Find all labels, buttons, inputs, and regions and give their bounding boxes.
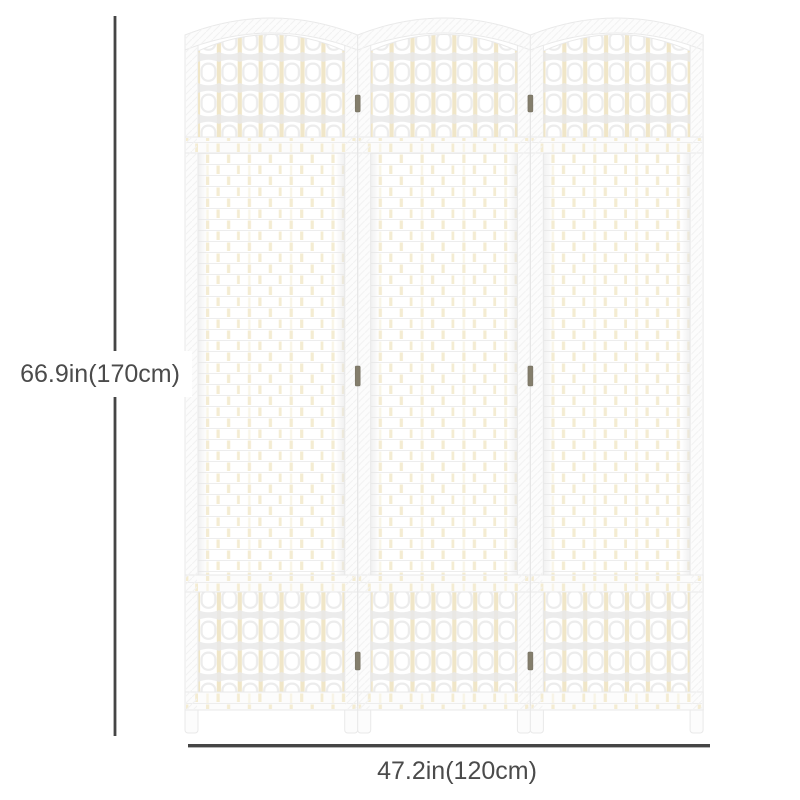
width-dimension-label: 47.2in(120cm): [327, 754, 587, 788]
divider-panel-2: [358, 18, 531, 733]
hinge-icon: [355, 95, 360, 112]
height-dimension-label: 66.9in(170cm): [8, 351, 192, 397]
hinge-icon: [528, 366, 533, 386]
room-divider-illustration: [0, 0, 800, 800]
divider-panel-1: [185, 18, 358, 733]
width-dimension-line: [188, 744, 710, 747]
divider-panel-3: [530, 18, 703, 733]
hinge-icon: [355, 366, 360, 386]
product-dimension-diagram: 66.9in(170cm) 47.2in(120cm): [0, 0, 800, 800]
room-divider: [185, 18, 703, 733]
hinge-icon: [355, 652, 360, 670]
hinge-icon: [528, 652, 533, 670]
hinge-icon: [528, 95, 533, 112]
